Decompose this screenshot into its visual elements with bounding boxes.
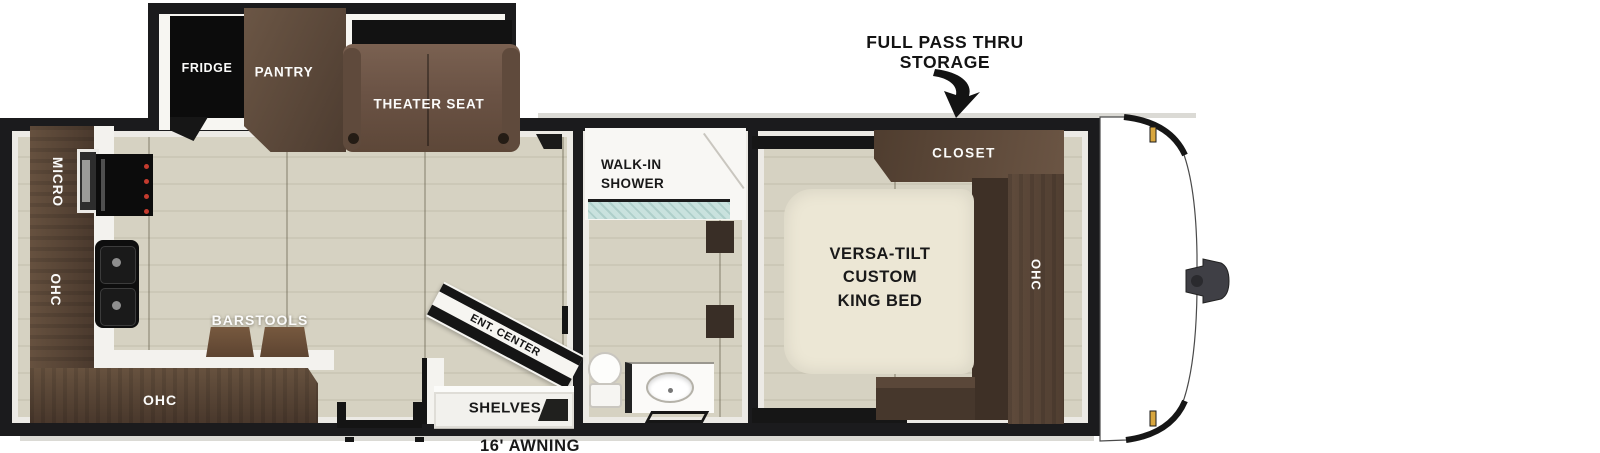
microwave-door xyxy=(82,160,90,202)
front-cap-body xyxy=(1100,117,1197,441)
awning-tick-left xyxy=(345,437,354,442)
shower-label-line2: SHOWER xyxy=(601,177,664,191)
bedroom-ohc-cabinet xyxy=(1008,174,1064,424)
bath-cabinet-lower xyxy=(706,305,734,338)
stove-knob-3 xyxy=(144,194,149,199)
bath-cabinet-upper xyxy=(706,221,734,253)
bedroom-ohc-label: OHC xyxy=(1030,259,1043,291)
vanity-sink-drain xyxy=(668,388,673,393)
sink-drain-lower xyxy=(112,301,121,310)
stove-knob-4 xyxy=(144,209,149,214)
hitch-socket xyxy=(1191,275,1203,287)
stove-handle xyxy=(101,159,105,211)
pass-thru-storage-line1: FULL PASS THRU xyxy=(866,33,1023,53)
bedroom-wardrobe-side xyxy=(972,178,1008,420)
stove-knob-2 xyxy=(144,179,149,184)
toilet-tank xyxy=(589,383,622,408)
shelves-label: SHELVES xyxy=(469,401,541,416)
bed-label-line1: VERSA-TILT xyxy=(830,246,931,263)
cupholder-right xyxy=(498,133,509,144)
ohc-upper-label: OHC xyxy=(48,274,62,307)
bed-label-line2: CUSTOM xyxy=(843,269,917,286)
toilet-bowl xyxy=(588,352,622,386)
bed-label-line3: KING BED xyxy=(838,293,923,310)
slideout-window xyxy=(352,20,512,47)
wall-return-stub xyxy=(562,306,568,334)
bath-mat xyxy=(645,411,709,423)
barstool-right xyxy=(260,327,309,357)
marker-light-bottom xyxy=(1150,411,1156,426)
bedroom-window-top xyxy=(752,136,883,149)
stove-knob-1 xyxy=(144,164,149,169)
barstool-left xyxy=(206,327,254,357)
pantry-label: PANTRY xyxy=(255,65,314,79)
cupholder-left xyxy=(348,133,359,144)
storage-arrow-icon xyxy=(905,66,995,122)
closet-label: CLOSET xyxy=(932,146,996,160)
theater-seat-label: THEATER SEAT xyxy=(373,97,484,111)
rv-floorplan: FRIDGE PANTRY THEATER SEAT MICRO OHC OHC… xyxy=(0,0,1600,453)
barstools-label: BARSTOOLS xyxy=(212,313,309,327)
front-cap xyxy=(1080,100,1240,450)
awning-label: 16' AWNING xyxy=(480,438,580,453)
micro-label: MICRO xyxy=(50,157,64,207)
ohc-lower-label: OHC xyxy=(143,393,177,407)
sink-drain-upper xyxy=(112,258,121,267)
entry-door-step xyxy=(337,420,422,428)
bed-foot-dresser xyxy=(876,377,975,420)
shower-label-line1: WALK-IN xyxy=(601,158,662,172)
pantry-cabinet xyxy=(244,8,346,152)
marker-light-top xyxy=(1150,127,1156,142)
fridge-label: FRIDGE xyxy=(182,62,233,75)
shower-glass xyxy=(588,202,730,219)
awning-tick-right xyxy=(415,437,424,442)
